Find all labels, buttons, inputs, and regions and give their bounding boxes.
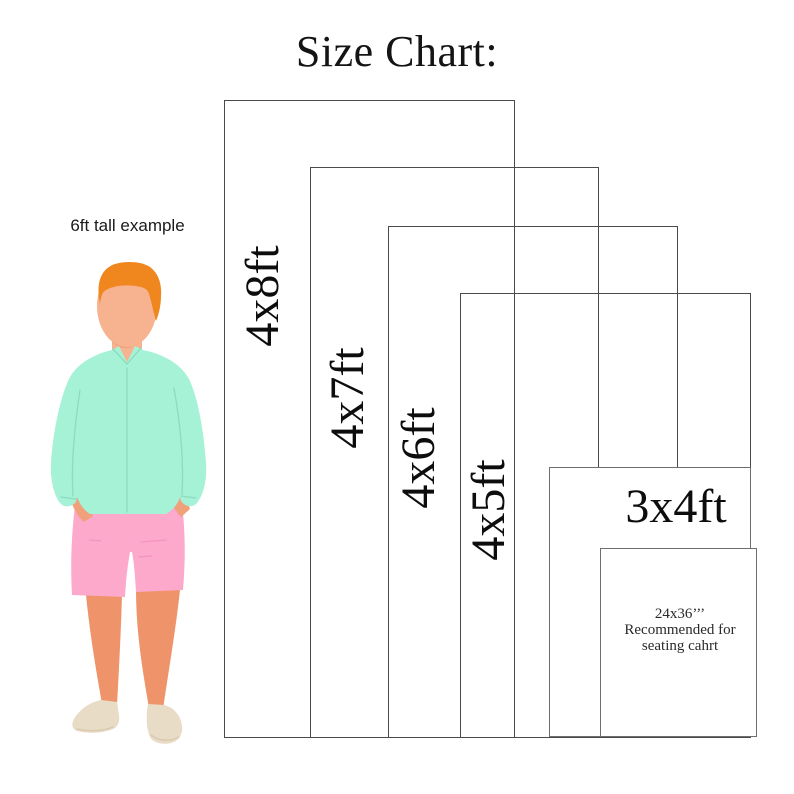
person-height-caption: 6ft tall example xyxy=(50,216,205,236)
size-label-4x5ft: 4x5ft xyxy=(465,459,513,560)
page-title: Size Chart: xyxy=(0,26,794,77)
note-text-line-1: Recommended for xyxy=(604,622,756,638)
size-label-3x4ft: 3x4ft xyxy=(625,483,726,531)
note-size-line: 24x36’’’ xyxy=(604,606,756,622)
person-illustration xyxy=(40,255,220,750)
size-chart-page: Size Chart: 6ft tall example 4x8ft 4x7ft… xyxy=(0,0,794,794)
person-left-leg xyxy=(86,595,122,705)
person-right-leg xyxy=(136,590,180,709)
size-label-4x8ft: 4x8ft xyxy=(239,245,287,346)
size-label-4x7ft: 4x7ft xyxy=(324,347,372,448)
recommendation-note: 24x36’’’ Recommended for seating cahrt xyxy=(604,606,756,654)
size-label-4x6ft: 4x6ft xyxy=(395,407,443,508)
note-text-line-2: seating cahrt xyxy=(604,638,756,654)
